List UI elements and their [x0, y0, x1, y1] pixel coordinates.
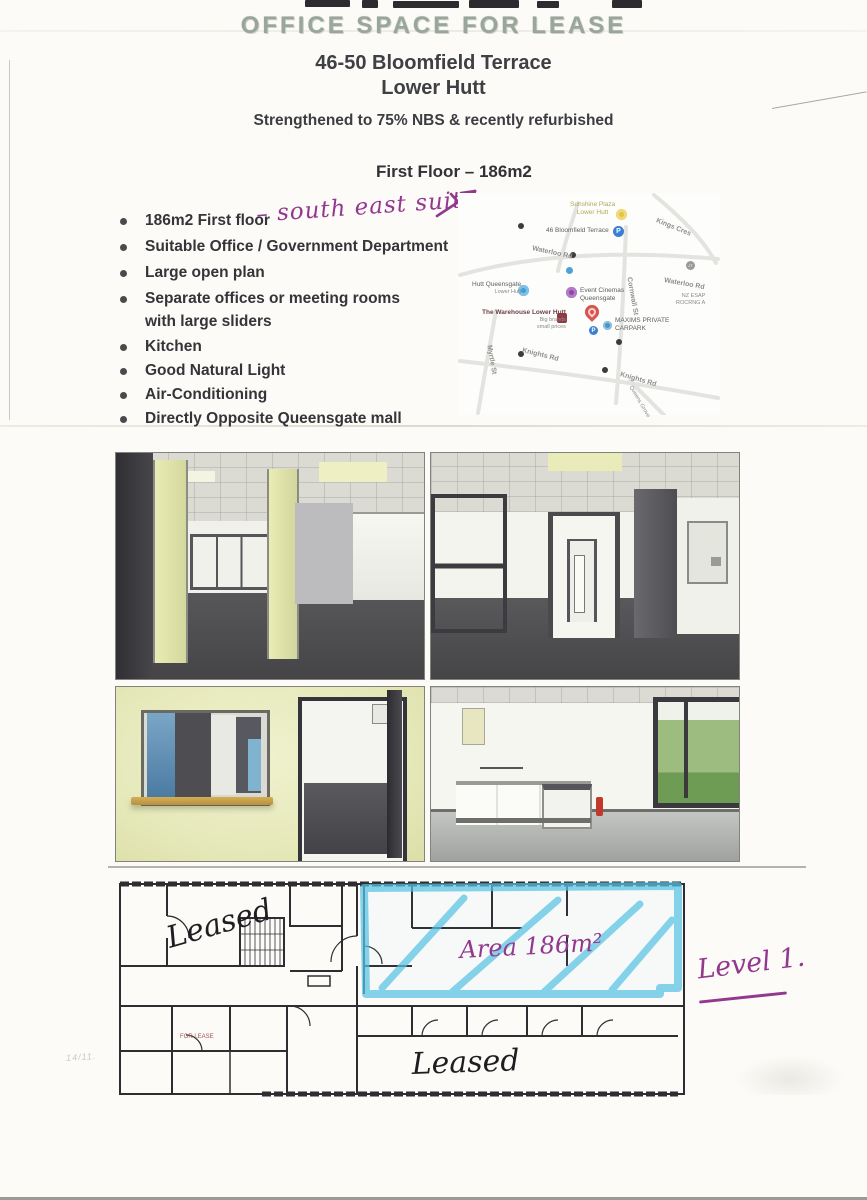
map-node-icon — [518, 223, 524, 229]
photo-open-plan-sliders — [115, 452, 425, 680]
photo-shape — [462, 708, 486, 745]
faint-pencil-note: 14/11. — [66, 1051, 97, 1063]
cropped-print-fragment — [612, 0, 642, 8]
map-label-line: NZ ESAP — [676, 293, 705, 300]
bullet-icon — [120, 392, 127, 399]
photo-shape — [387, 690, 402, 857]
map-label-sunshine: Sunshine Plaza Lower Hutt — [570, 201, 615, 217]
photo-shape — [634, 489, 677, 638]
section-divider-line — [108, 866, 806, 868]
parking-icon: P — [613, 226, 624, 237]
feature-item: Kitchen — [120, 338, 202, 356]
map-label-nz: NZ ESAP ROCRNG A — [676, 293, 705, 307]
feature-item: Suitable Office / Government Department — [120, 238, 448, 256]
photo-servery-hatch — [115, 686, 425, 862]
map-node-icon — [602, 367, 608, 373]
bullet-icon — [120, 244, 127, 251]
cropped-print-fragment — [537, 1, 559, 8]
location-map: P P JT Sunshine Plaza Lower Hutt 46 Bloo… — [458, 193, 720, 415]
photo-shape — [480, 767, 523, 769]
scanned-lease-flyer-page: OFFICE SPACE FOR LEASE 46-50 Bloomfield … — [0, 0, 867, 1200]
map-label-bloomfield: 46 Bloomfield Terrace — [546, 227, 609, 235]
cropped-print-fragment — [469, 0, 519, 8]
map-label-line: Queensgate — [580, 295, 624, 303]
photo-shape — [153, 460, 188, 663]
map-label-line: CARPARK — [615, 325, 669, 333]
feature-item: Good Natural Light — [120, 362, 285, 380]
photo-shape — [116, 453, 153, 679]
handwritten-underline — [699, 991, 787, 1003]
photo-kitchen — [430, 686, 740, 862]
photo-shape — [548, 453, 622, 471]
photo-shape — [211, 715, 236, 795]
bullet-icon — [120, 270, 127, 277]
map-label-event-cinemas: Event Cinemas Queensgate — [580, 287, 624, 303]
feature-label: Air-Conditioning — [145, 386, 267, 404]
floor-plan: Leased Area 186m² Leased FOR LEASE — [112, 876, 692, 1108]
for-lease-print-label: FOR LEASE — [180, 1034, 214, 1040]
strengthening-note: Strengthened to 75% NBS & recently refur… — [0, 112, 867, 130]
scan-smudge — [735, 1055, 845, 1095]
feature-label: Separate offices or meeting rooms — [145, 290, 400, 308]
carpark-icon — [603, 321, 612, 330]
map-label-line: Sunshine Plaza — [570, 201, 615, 209]
feature-label: Directly Opposite Queensgate mall — [145, 410, 402, 428]
bullet-icon — [120, 368, 127, 375]
map-label-line: Lower Hutt — [472, 289, 521, 296]
map-label-line: ROCRNG A — [676, 300, 705, 307]
map-label-line: Hutt Queensgate — [472, 281, 521, 289]
photo-shape — [653, 697, 740, 808]
photo-shape — [304, 783, 393, 854]
map-label-queensgate: Hutt Queensgate Lower Hutt — [472, 281, 521, 296]
cropped-print-fragment — [305, 0, 350, 7]
feature-item: Directly Opposite Queensgate mall — [120, 410, 402, 428]
map-label-maxims: MAXIMS PRIVATE CARPARK — [615, 317, 669, 333]
photo-shape — [596, 797, 604, 816]
photo-shape — [687, 521, 728, 584]
photo-shape — [711, 557, 720, 566]
handwritten-leased-lower: Leased — [410, 1043, 520, 1082]
photo-shape — [175, 713, 212, 797]
feature-label-continued: with large sliders — [145, 313, 272, 331]
photo-shape — [147, 713, 175, 797]
photo-shape — [295, 503, 354, 605]
transit-icon — [566, 267, 573, 274]
photo-shape — [319, 462, 387, 482]
photo-shape — [684, 697, 688, 798]
handwritten-leased-upper: Leased — [162, 892, 276, 956]
cropped-print-fragment — [393, 1, 459, 8]
feature-label: Suitable Office / Government Department — [145, 238, 448, 256]
jt-icon: JT — [686, 261, 695, 270]
stamp-title: OFFICE SPACE FOR LEASE — [0, 12, 867, 40]
photo-shape — [190, 534, 270, 590]
map-label-line: MAXIMS PRIVATE — [615, 317, 669, 325]
bullet-icon — [120, 344, 127, 351]
photo-shape — [456, 818, 592, 823]
cropped-print-fragment — [362, 0, 378, 8]
photo-shape — [184, 471, 215, 482]
sunshine-plaza-icon — [616, 209, 627, 220]
photo-shape — [431, 494, 507, 633]
feature-label: Large open plan — [145, 264, 265, 282]
feature-label: 186m2 First floor — [145, 212, 270, 230]
address-line-1: 46-50 Bloomfield Terrace — [0, 52, 867, 75]
bullet-icon — [120, 296, 127, 303]
photo-shape — [353, 512, 424, 600]
section-title: First Floor – 186m2 — [376, 162, 532, 182]
photo-corridor — [430, 452, 740, 680]
photo-shape — [248, 739, 260, 791]
feature-label: Good Natural Light — [145, 362, 285, 380]
map-label-line: Lower Hutt — [570, 209, 615, 217]
address-line-2: Lower Hutt — [0, 77, 867, 100]
bullet-icon — [120, 416, 127, 423]
photo-shape — [574, 555, 585, 614]
feature-label: Kitchen — [145, 338, 202, 356]
map-node-icon — [616, 339, 622, 345]
feature-item: Separate offices or meeting rooms — [120, 290, 400, 308]
map-label-line: The Warehouse Lower Hutt — [482, 309, 566, 317]
parking-icon: P — [589, 326, 598, 335]
feature-item: Air-Conditioning — [120, 386, 267, 404]
handwritten-level-note: Level 1. — [696, 942, 807, 986]
photo-shape — [131, 797, 273, 806]
feature-item: 186m2 First floor — [120, 212, 270, 230]
feature-item: Large open plan — [120, 264, 265, 282]
map-label-line: small prices — [482, 324, 566, 331]
event-cinemas-icon — [566, 287, 577, 298]
map-label-line: Big brands — [482, 317, 566, 324]
map-label-warehouse: The Warehouse Lower Hutt Big brands smal… — [482, 309, 566, 331]
bullet-icon — [120, 218, 127, 225]
map-label-line: Event Cinemas — [580, 287, 624, 295]
